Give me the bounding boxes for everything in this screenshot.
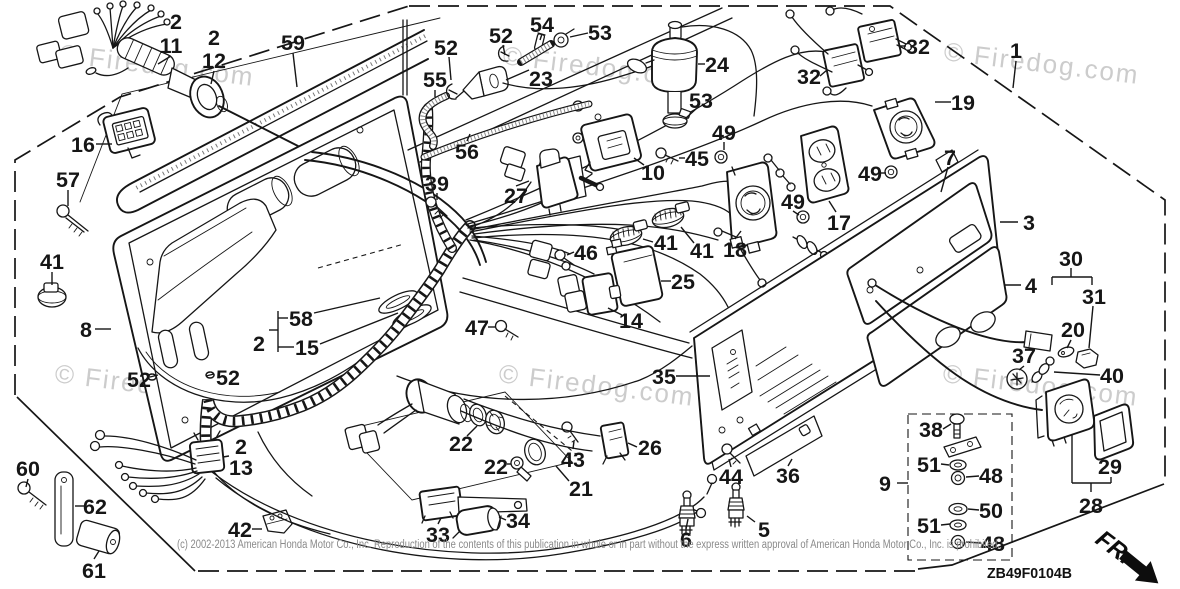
- svg-text:60: 60: [16, 457, 40, 481]
- svg-text:57: 57: [56, 168, 80, 192]
- svg-text:52: 52: [216, 366, 240, 390]
- svg-text:18: 18: [723, 238, 747, 262]
- svg-text:53: 53: [689, 89, 713, 113]
- svg-text:3: 3: [1023, 211, 1035, 235]
- svg-text:2: 2: [208, 26, 220, 50]
- svg-text:38: 38: [919, 418, 943, 442]
- svg-text:47: 47: [465, 316, 489, 340]
- svg-text:24: 24: [705, 53, 729, 77]
- svg-text:13: 13: [229, 456, 253, 480]
- svg-text:14: 14: [619, 309, 643, 333]
- svg-text:50: 50: [979, 499, 1003, 523]
- svg-text:39: 39: [425, 172, 449, 196]
- svg-text:45: 45: [685, 147, 709, 171]
- svg-text:34: 34: [506, 509, 530, 533]
- svg-text:9: 9: [879, 472, 891, 496]
- svg-text:22: 22: [484, 455, 508, 479]
- svg-text:27: 27: [504, 184, 528, 208]
- svg-text:11: 11: [160, 34, 183, 58]
- svg-text:12: 12: [202, 49, 226, 73]
- svg-text:59: 59: [281, 31, 305, 55]
- svg-text:28: 28: [1079, 494, 1103, 518]
- svg-text:52: 52: [434, 36, 458, 60]
- svg-text:35: 35: [652, 365, 676, 389]
- svg-text:49: 49: [712, 121, 736, 145]
- svg-text:17: 17: [827, 211, 851, 235]
- svg-text:32: 32: [906, 35, 930, 59]
- svg-text:54: 54: [530, 13, 554, 37]
- svg-text:44: 44: [719, 465, 743, 489]
- svg-text:56: 56: [455, 140, 479, 164]
- svg-text:36: 36: [776, 464, 800, 488]
- svg-text:46: 46: [574, 241, 598, 265]
- svg-text:52: 52: [127, 368, 151, 392]
- svg-text:52: 52: [489, 24, 513, 48]
- svg-text:37: 37: [1012, 344, 1036, 368]
- svg-text:29: 29: [1098, 455, 1122, 479]
- svg-text:41: 41: [40, 250, 64, 274]
- svg-text:19: 19: [951, 91, 975, 115]
- svg-text:30: 30: [1059, 247, 1083, 271]
- svg-text:51: 51: [917, 453, 941, 477]
- svg-text:25: 25: [671, 270, 695, 294]
- svg-text:10: 10: [641, 161, 665, 185]
- svg-text:22: 22: [449, 432, 473, 456]
- svg-text:8: 8: [80, 318, 92, 342]
- svg-text:49: 49: [858, 162, 882, 186]
- svg-text:4: 4: [1025, 274, 1037, 298]
- svg-text:23: 23: [529, 67, 553, 91]
- svg-text:26: 26: [638, 436, 662, 460]
- svg-text:58: 58: [289, 307, 313, 331]
- svg-text:55: 55: [423, 68, 447, 92]
- svg-text:43: 43: [561, 448, 585, 472]
- svg-text:(c) 2002-2013 American Honda M: (c) 2002-2013 American Honda Motor Co., …: [177, 539, 1000, 551]
- svg-text:7: 7: [944, 146, 956, 170]
- svg-text:2: 2: [170, 10, 182, 34]
- svg-text:32: 32: [797, 65, 821, 89]
- svg-text:40: 40: [1100, 364, 1124, 388]
- svg-text:1: 1: [1010, 39, 1022, 63]
- svg-text:21: 21: [569, 477, 593, 501]
- svg-text:48: 48: [979, 464, 1003, 488]
- svg-text:20: 20: [1061, 318, 1085, 342]
- svg-text:62: 62: [83, 495, 107, 519]
- svg-text:53: 53: [588, 21, 612, 45]
- svg-text:49: 49: [781, 190, 805, 214]
- svg-text:31: 31: [1082, 285, 1106, 309]
- svg-text:15: 15: [295, 336, 319, 360]
- svg-text:16: 16: [71, 133, 95, 157]
- svg-text:51: 51: [917, 514, 941, 538]
- svg-text:41: 41: [654, 231, 678, 255]
- svg-text:ZB49F0104B: ZB49F0104B: [987, 565, 1072, 582]
- svg-text:61: 61: [82, 559, 106, 583]
- svg-text:2: 2: [253, 332, 265, 356]
